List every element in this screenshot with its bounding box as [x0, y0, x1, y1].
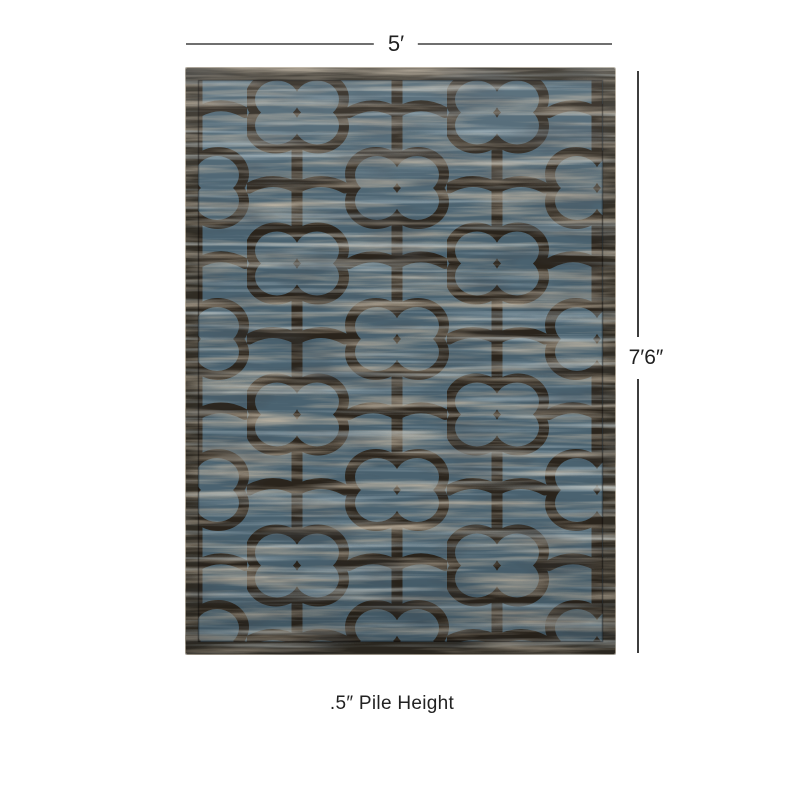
pile-height-label: .5″ Pile Height — [330, 693, 454, 715]
width-dimension-label: 5′ — [374, 30, 418, 58]
product-dimension-diagram: 5′ 7′6″ — [0, 0, 800, 800]
height-dimension-label: 7′6″ — [626, 337, 667, 379]
rug-shading-overlay — [185, 67, 616, 655]
rug-image — [185, 67, 616, 655]
